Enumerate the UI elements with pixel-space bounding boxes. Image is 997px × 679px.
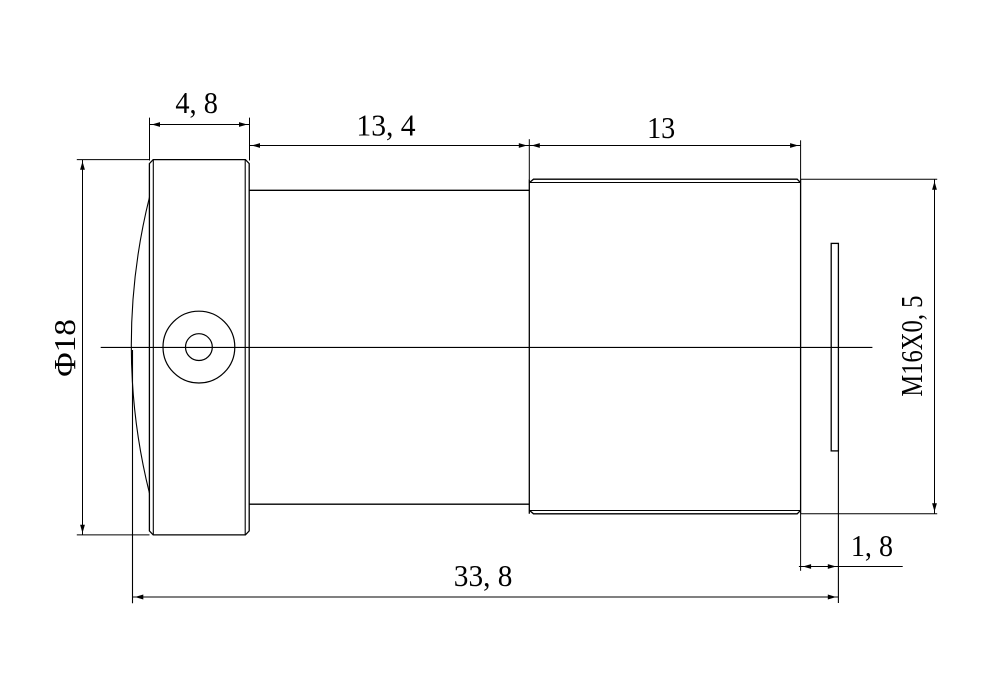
svg-text:33, 8: 33, 8	[454, 559, 513, 593]
svg-text:Φ18: Φ18	[48, 319, 82, 377]
svg-text:1, 8: 1, 8	[851, 529, 893, 563]
svg-text:M16X0, 5: M16X0, 5	[895, 296, 929, 397]
svg-text:13: 13	[647, 111, 675, 145]
svg-text:13, 4: 13, 4	[356, 109, 415, 143]
svg-text:4, 8: 4, 8	[175, 86, 218, 120]
